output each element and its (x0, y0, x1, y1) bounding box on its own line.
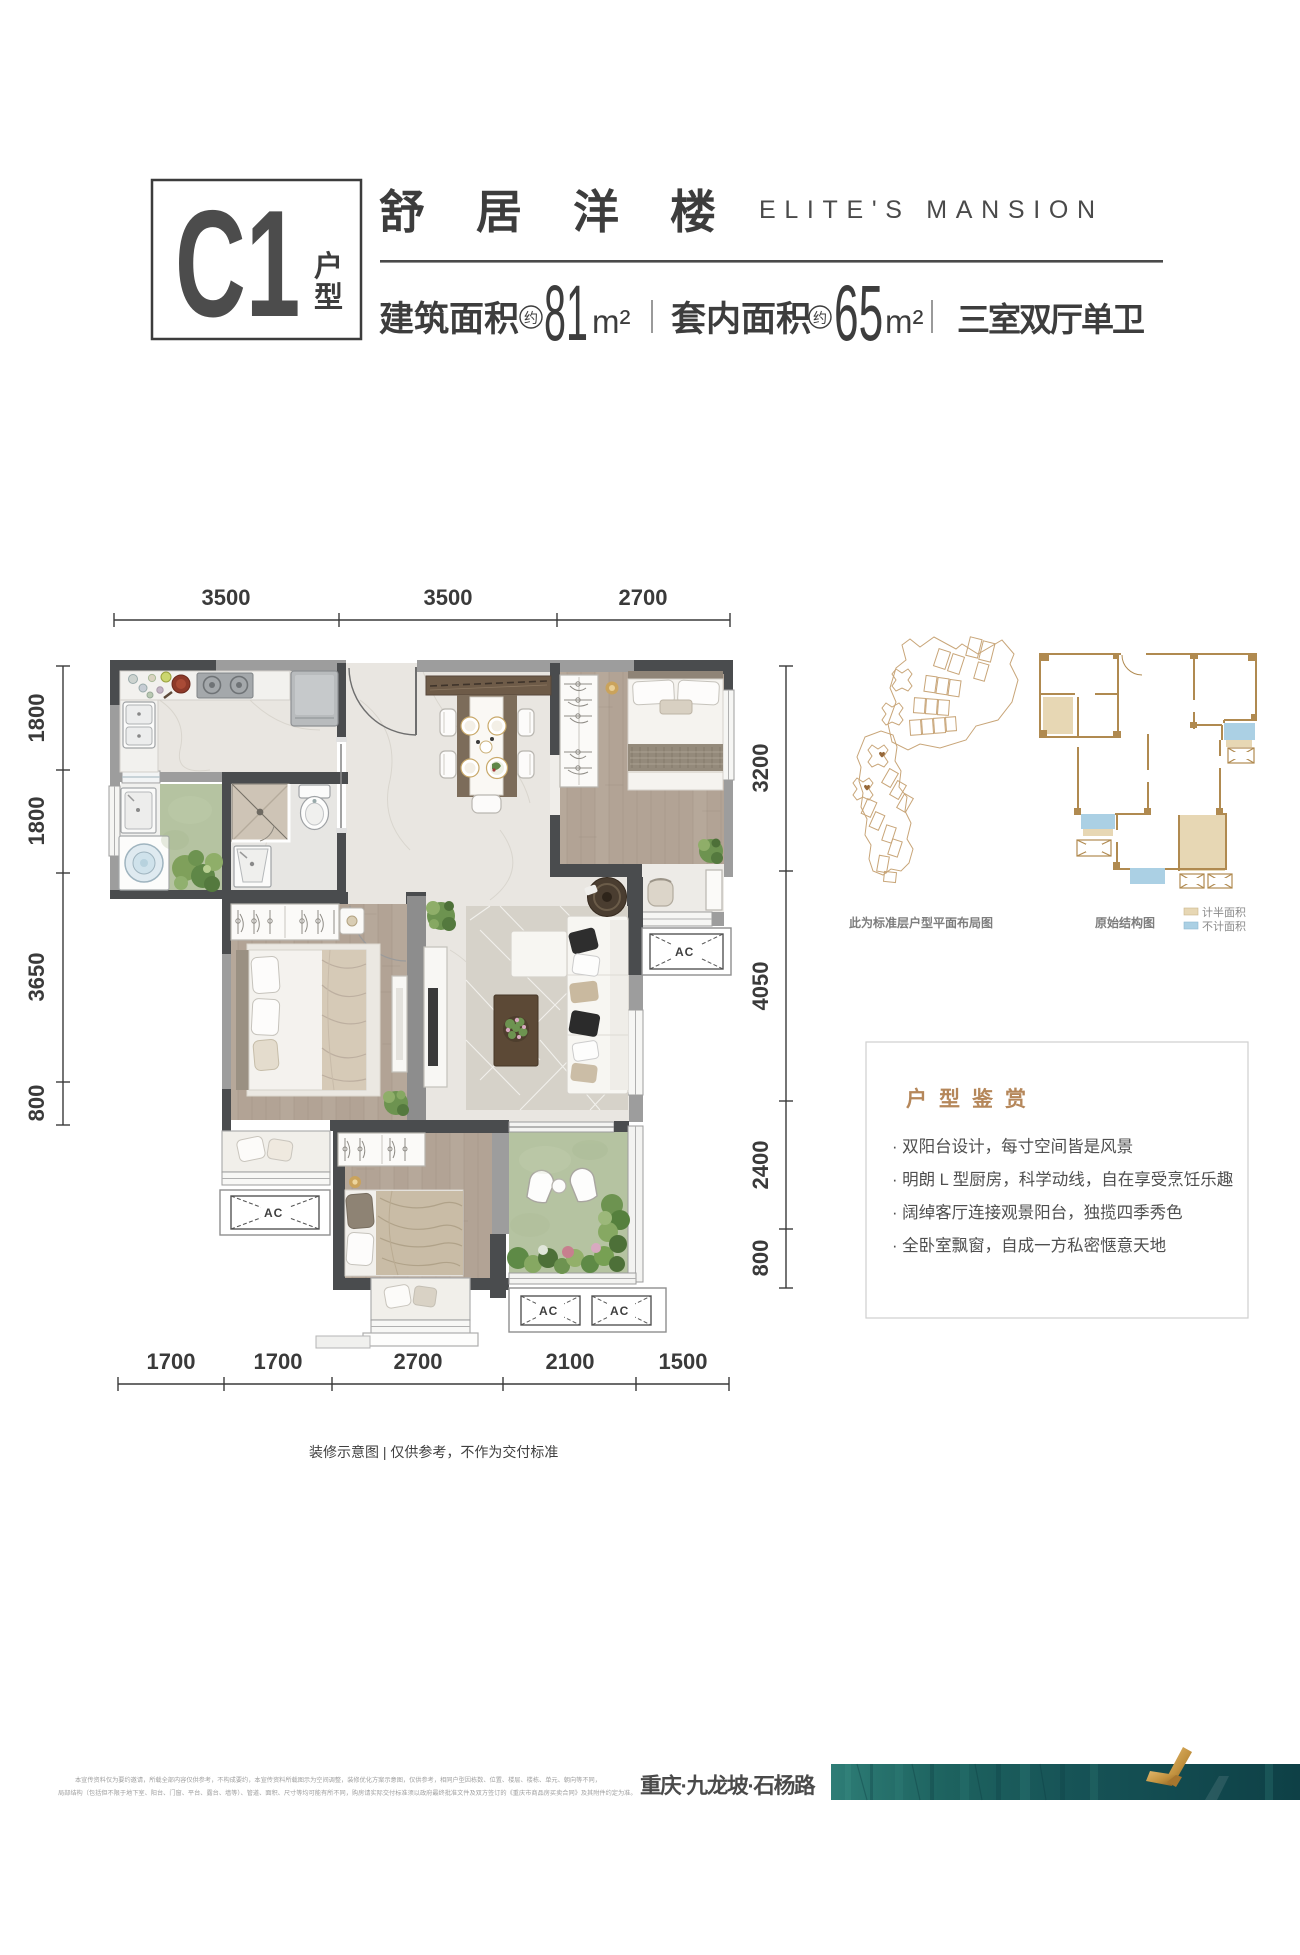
svg-text:AC: AC (675, 945, 694, 959)
svg-text:原始结构图: 原始结构图 (1095, 915, 1155, 930)
svg-text:ELITE'S MANSION: ELITE'S MANSION (759, 196, 1106, 224)
svg-text:局部结构（包括但不限于地下室、阳台、门窗、平台、露台、墙等）: 局部结构（包括但不限于地下室、阳台、门窗、平台、露台、墙等）、管道、面积、尺寸等… (58, 1789, 637, 1797)
svg-text:65: 65 (834, 268, 883, 357)
svg-text:此为标准层户型平面布局图: 此为标准层户型平面布局图 (849, 915, 993, 930)
svg-text:舒居洋楼: 舒居洋楼 (379, 186, 767, 238)
svg-text:· 全卧室飘窗，自成一方私密惬意天地: · 全卧室飘窗，自成一方私密惬意天地 (892, 1236, 1166, 1255)
svg-text:约: 约 (813, 310, 827, 326)
svg-text:m²: m² (592, 303, 630, 340)
svg-text:800: 800 (24, 1085, 49, 1122)
svg-text:不计面积: 不计面积 (1202, 920, 1246, 933)
svg-text:C1: C1 (175, 179, 300, 349)
svg-text:3200: 3200 (748, 744, 773, 793)
svg-text:计半面积: 计半面积 (1202, 905, 1246, 919)
svg-text:2700: 2700 (394, 1349, 443, 1374)
svg-text:3650: 3650 (24, 953, 49, 1002)
svg-text:2700: 2700 (619, 585, 668, 610)
svg-text:AC: AC (610, 1304, 629, 1318)
svg-text:4050: 4050 (748, 962, 773, 1011)
svg-text:装修示意图 | 仅供参考，不作为交付标准: 装修示意图 | 仅供参考，不作为交付标准 (309, 1444, 558, 1460)
svg-text:· 明朗 L 型厨房，科学动线，自在享受烹饪乐趣: · 明朗 L 型厨房，科学动线，自在享受烹饪乐趣 (892, 1169, 1233, 1189)
svg-text:户型鉴赏: 户型鉴赏 (906, 1087, 1038, 1111)
svg-text:本宣传资料仅为要约邀请，所载全部内容仅供参考，不构成要约，本: 本宣传资料仅为要约邀请，所载全部内容仅供参考，不构成要约，本宣传资料所载图示为空… (75, 1776, 601, 1784)
svg-text:1700: 1700 (147, 1349, 196, 1374)
svg-text:· 阔绰客厅连接观景阳台，独揽四季秀色: · 阔绰客厅连接观景阳台，独揽四季秀色 (892, 1203, 1183, 1222)
svg-text:1800: 1800 (24, 694, 49, 743)
svg-text:户: 户 (314, 249, 343, 283)
svg-text:3500: 3500 (202, 585, 251, 610)
svg-text:套内面积: 套内面积 (671, 300, 811, 339)
svg-text:1800: 1800 (24, 797, 49, 846)
svg-text:81: 81 (544, 269, 588, 358)
svg-text:1500: 1500 (659, 1349, 708, 1374)
svg-text:2100: 2100 (546, 1349, 595, 1374)
svg-text:建筑面积: 建筑面积 (379, 300, 519, 339)
svg-text:3500: 3500 (424, 585, 473, 610)
svg-text:800: 800 (748, 1240, 773, 1277)
svg-text:约: 约 (524, 310, 538, 326)
svg-text:三室双厅单卫: 三室双厅单卫 (957, 301, 1144, 338)
svg-text:AC: AC (539, 1304, 558, 1318)
svg-text:2400: 2400 (748, 1141, 773, 1190)
svg-text:AC: AC (264, 1206, 283, 1220)
svg-text:· 双阳台设计，每寸空间皆是风景: · 双阳台设计，每寸空间皆是风景 (892, 1137, 1133, 1156)
svg-text:重庆·九龙坡·石杨路: 重庆·九龙坡·石杨路 (640, 1773, 816, 1798)
svg-text:1700: 1700 (254, 1349, 303, 1374)
svg-text:m²: m² (885, 303, 923, 340)
svg-text:型: 型 (314, 281, 343, 314)
